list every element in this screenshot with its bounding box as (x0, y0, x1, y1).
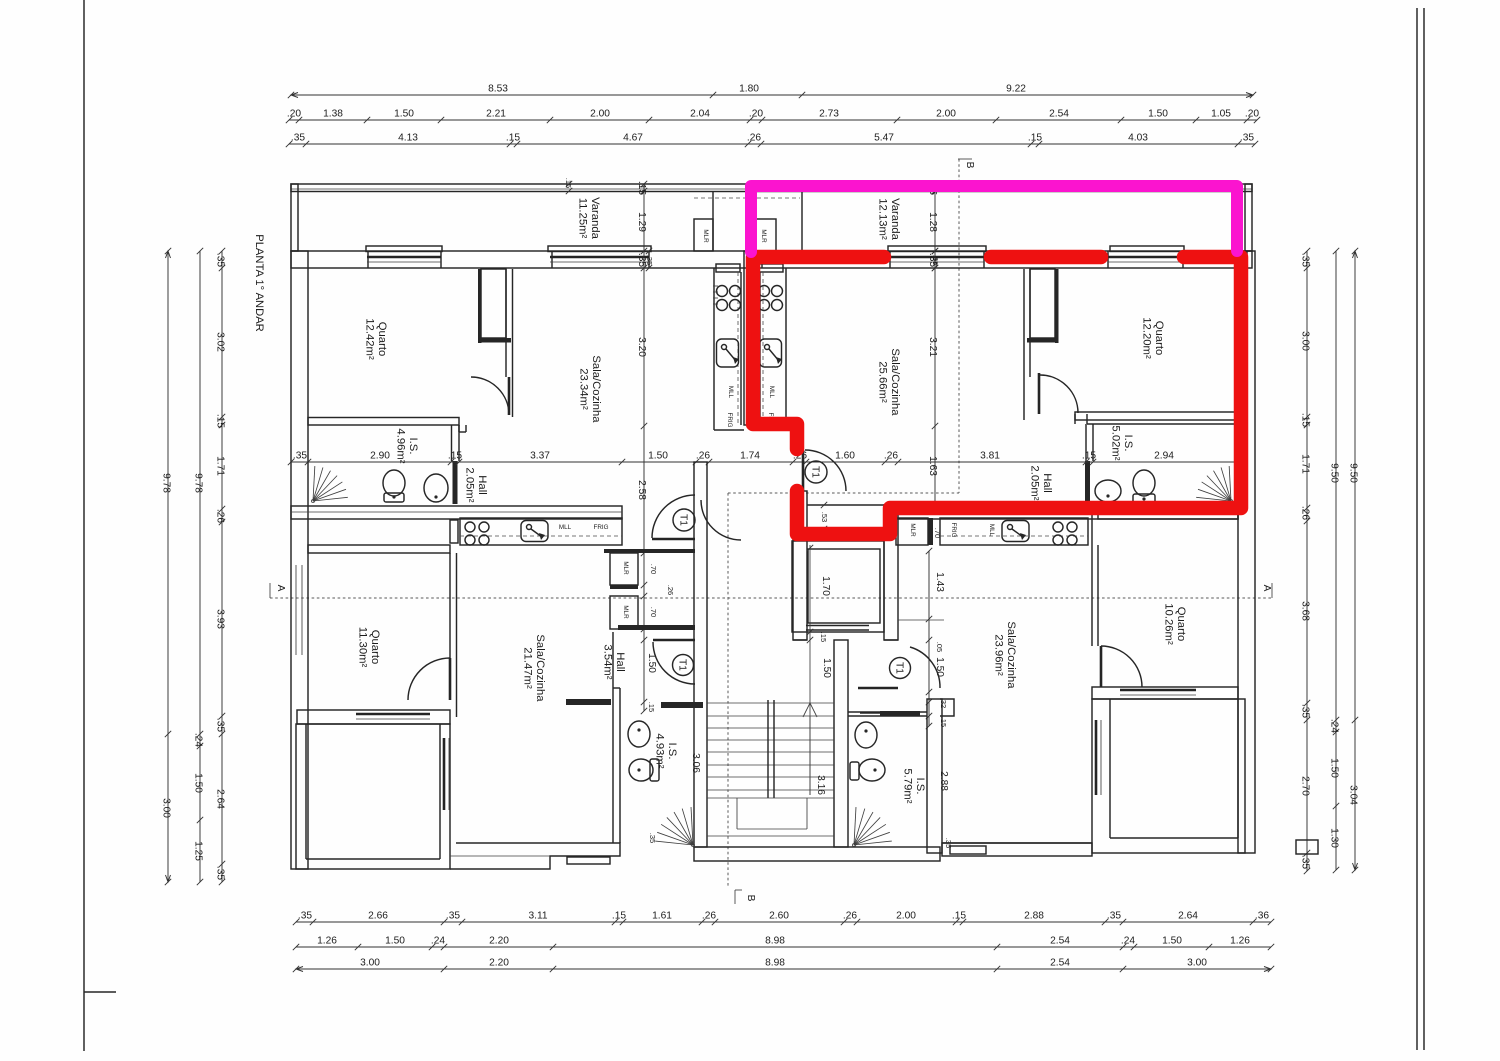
svg-text:8.98: 8.98 (765, 958, 785, 969)
svg-text:3.04: 3.04 (1348, 785, 1359, 805)
svg-text:5.47: 5.47 (874, 133, 894, 144)
svg-text:3.11: 3.11 (528, 911, 547, 922)
svg-text:.53: .53 (820, 512, 829, 522)
svg-text:1.50: 1.50 (1162, 936, 1182, 947)
svg-text:3.21: 3.21 (927, 337, 938, 357)
svg-text:2.64: 2.64 (215, 789, 226, 809)
svg-text:1.05: 1.05 (1211, 109, 1231, 120)
svg-text:.20: .20 (1245, 109, 1259, 120)
svg-text:1.70: 1.70 (820, 576, 831, 596)
svg-text:1.71: 1.71 (1300, 454, 1311, 474)
svg-text:2.00: 2.00 (896, 911, 916, 922)
svg-text:1.74: 1.74 (740, 451, 760, 462)
svg-text:MLL: MLL (768, 386, 775, 399)
svg-text:.15: .15 (819, 632, 828, 642)
svg-text:1.50: 1.50 (394, 109, 414, 120)
svg-text:1.50: 1.50 (193, 773, 204, 793)
svg-text:2.04: 2.04 (690, 109, 710, 120)
svg-text:.26: .26 (843, 911, 857, 922)
svg-text:9.50: 9.50 (1329, 463, 1340, 483)
svg-text:2.54: 2.54 (1050, 936, 1070, 947)
svg-text:2.70: 2.70 (1300, 776, 1311, 796)
svg-text:.05: .05 (935, 642, 944, 652)
svg-text:.35: .35 (215, 718, 226, 732)
svg-text:.35: .35 (215, 253, 226, 267)
svg-text:MLR: MLR (622, 561, 629, 575)
svg-text:B: B (745, 895, 756, 902)
svg-text:T1: T1 (810, 466, 821, 478)
svg-text:2.66: 2.66 (368, 911, 388, 922)
svg-text:.35: .35 (1107, 911, 1121, 922)
svg-text:3.37: 3.37 (530, 451, 550, 462)
svg-text:2.90: 2.90 (370, 451, 390, 462)
svg-text:.26: .26 (702, 911, 716, 922)
svg-text:.35: .35 (291, 133, 305, 144)
svg-text:.26: .26 (884, 451, 898, 462)
svg-text:8.53: 8.53 (488, 84, 508, 95)
svg-text:.15: .15 (215, 414, 226, 428)
svg-text:2.88: 2.88 (1024, 911, 1044, 922)
svg-text:.35: .35 (446, 911, 460, 922)
svg-text:.15: .15 (952, 911, 966, 922)
svg-text:1.50: 1.50 (821, 658, 832, 678)
svg-text:MLR: MLR (760, 229, 767, 243)
svg-text:1.50: 1.50 (385, 936, 405, 947)
svg-text:MLL: MLL (988, 524, 995, 537)
svg-text:.24: .24 (193, 733, 204, 747)
svg-text:2.21: 2.21 (486, 109, 506, 120)
svg-text:.15: .15 (612, 911, 626, 922)
svg-text:.24: .24 (431, 936, 445, 947)
svg-text:Quarto10.26m²: Quarto10.26m² (1162, 603, 1187, 645)
svg-text:1.50: 1.50 (1329, 758, 1340, 778)
svg-text:.15: .15 (636, 181, 647, 195)
svg-text:Quarto12.42m²: Quarto12.42m² (363, 318, 388, 360)
svg-text:2.94: 2.94 (1154, 451, 1174, 462)
svg-text:.26: .26 (747, 133, 761, 144)
svg-text:.26: .26 (696, 451, 710, 462)
svg-text:8.98: 8.98 (765, 936, 785, 947)
svg-text:3.00: 3.00 (360, 958, 380, 969)
svg-text:2.00: 2.00 (590, 109, 610, 120)
svg-text:3.68: 3.68 (1300, 601, 1311, 621)
svg-text:.15: .15 (1082, 451, 1096, 462)
svg-text:.70: .70 (649, 564, 658, 574)
svg-text:4.03: 4.03 (1128, 133, 1148, 144)
svg-text:1.26: 1.26 (1230, 936, 1250, 947)
svg-text:FRIG: FRIG (950, 522, 957, 537)
svg-text:2.88: 2.88 (938, 771, 949, 791)
svg-text:2.54: 2.54 (1050, 958, 1070, 969)
svg-text:1.50: 1.50 (1148, 109, 1168, 120)
svg-text:.15: .15 (1300, 413, 1311, 427)
svg-text:T1: T1 (678, 514, 689, 526)
svg-text:FRIG: FRIG (593, 524, 608, 531)
svg-text:.70: .70 (933, 528, 942, 538)
svg-text:.15: .15 (448, 451, 462, 462)
svg-text:9.50: 9.50 (1348, 463, 1359, 483)
svg-text:MLR: MLR (909, 523, 916, 537)
svg-text:.35: .35 (215, 866, 226, 880)
svg-text:3.00: 3.00 (1300, 331, 1311, 351)
svg-text:.24: .24 (1121, 936, 1135, 947)
svg-text:2.60: 2.60 (769, 911, 789, 922)
svg-text:.26: .26 (666, 585, 675, 595)
svg-text:.20: .20 (287, 109, 301, 120)
svg-text:3.93: 3.93 (215, 609, 226, 629)
svg-text:1.25: 1.25 (193, 841, 204, 861)
svg-text:3.20: 3.20 (636, 337, 647, 357)
svg-text:A: A (1261, 585, 1272, 592)
svg-text:B: B (964, 162, 975, 169)
svg-text:T1: T1 (894, 662, 905, 674)
svg-text:.26: .26 (1300, 506, 1311, 520)
svg-text:.35: .35 (1300, 253, 1311, 267)
svg-text:Quarto12.20m²: Quarto12.20m² (1140, 317, 1165, 359)
svg-text:1.26: 1.26 (317, 936, 337, 947)
svg-text:3.81: 3.81 (980, 451, 1000, 462)
svg-text:9.78: 9.78 (161, 473, 172, 493)
svg-text:.35: .35 (636, 253, 647, 267)
svg-text:9.78: 9.78 (193, 473, 204, 493)
svg-text:.35: .35 (293, 451, 307, 462)
svg-text:1.43: 1.43 (934, 572, 945, 592)
svg-text:.35: .35 (927, 253, 938, 267)
svg-text:.15: .15 (647, 702, 656, 712)
svg-text:.15: .15 (939, 717, 948, 727)
svg-text:1.71: 1.71 (215, 456, 226, 476)
svg-text:PLANTA 1° ANDAR: PLANTA 1° ANDAR (253, 234, 265, 332)
svg-text:3.02: 3.02 (215, 332, 226, 352)
svg-text:.35: .35 (648, 833, 657, 843)
svg-text:3.00: 3.00 (161, 798, 172, 818)
svg-text:1.61: 1.61 (652, 911, 672, 922)
svg-text:MLR: MLR (622, 605, 629, 619)
svg-text:A: A (275, 585, 286, 592)
svg-text:.35: .35 (298, 911, 312, 922)
svg-text:MLR: MLR (702, 229, 709, 243)
svg-text:.15: .15 (506, 133, 520, 144)
svg-text:2.73: 2.73 (819, 109, 839, 120)
svg-text:9.22: 9.22 (1006, 84, 1026, 95)
svg-text:Varanda12.13m²: Varanda12.13m² (876, 198, 901, 241)
svg-text:3.16: 3.16 (815, 775, 826, 795)
svg-text:.35: .35 (1240, 133, 1254, 144)
svg-text:Varanda11.25m²: Varanda11.25m² (576, 197, 601, 240)
svg-text:Quarto11.30m²: Quarto11.30m² (356, 627, 381, 668)
svg-text:.35: .35 (1300, 855, 1311, 869)
svg-text:.70: .70 (649, 607, 658, 617)
svg-text:.15: .15 (1028, 133, 1042, 144)
svg-text:.26: .26 (215, 509, 226, 523)
svg-text:2.58: 2.58 (636, 480, 647, 500)
svg-text:1.38: 1.38 (323, 109, 343, 120)
svg-text:2.54: 2.54 (1049, 109, 1069, 120)
svg-text:.15: .15 (564, 178, 573, 188)
svg-text:4.67: 4.67 (623, 133, 643, 144)
svg-text:.36: .36 (1255, 911, 1269, 922)
svg-text:1.63: 1.63 (927, 456, 938, 476)
svg-text:T1: T1 (677, 659, 688, 671)
svg-text:2.20: 2.20 (489, 936, 509, 947)
svg-text:FRIG: FRIG (726, 412, 733, 427)
svg-text:1.80: 1.80 (739, 84, 759, 95)
svg-text:MLL: MLL (559, 524, 572, 531)
svg-text:2.00: 2.00 (936, 109, 956, 120)
svg-text:1.60: 1.60 (835, 451, 855, 462)
svg-text:MLL: MLL (727, 386, 734, 399)
svg-text:3.06: 3.06 (690, 753, 701, 773)
svg-text:2.64: 2.64 (1178, 911, 1198, 922)
svg-text:1.29: 1.29 (636, 212, 647, 232)
svg-text:2.20: 2.20 (489, 958, 509, 969)
svg-text:1.30: 1.30 (1329, 828, 1340, 848)
svg-text:4.13: 4.13 (398, 133, 418, 144)
svg-text:3.00: 3.00 (1187, 958, 1207, 969)
svg-text:1.50: 1.50 (648, 451, 668, 462)
svg-text:.24: .24 (1329, 719, 1340, 733)
svg-text:.35: .35 (1300, 704, 1311, 718)
svg-text:.20: .20 (749, 109, 763, 120)
svg-text:1.28: 1.28 (927, 212, 938, 232)
